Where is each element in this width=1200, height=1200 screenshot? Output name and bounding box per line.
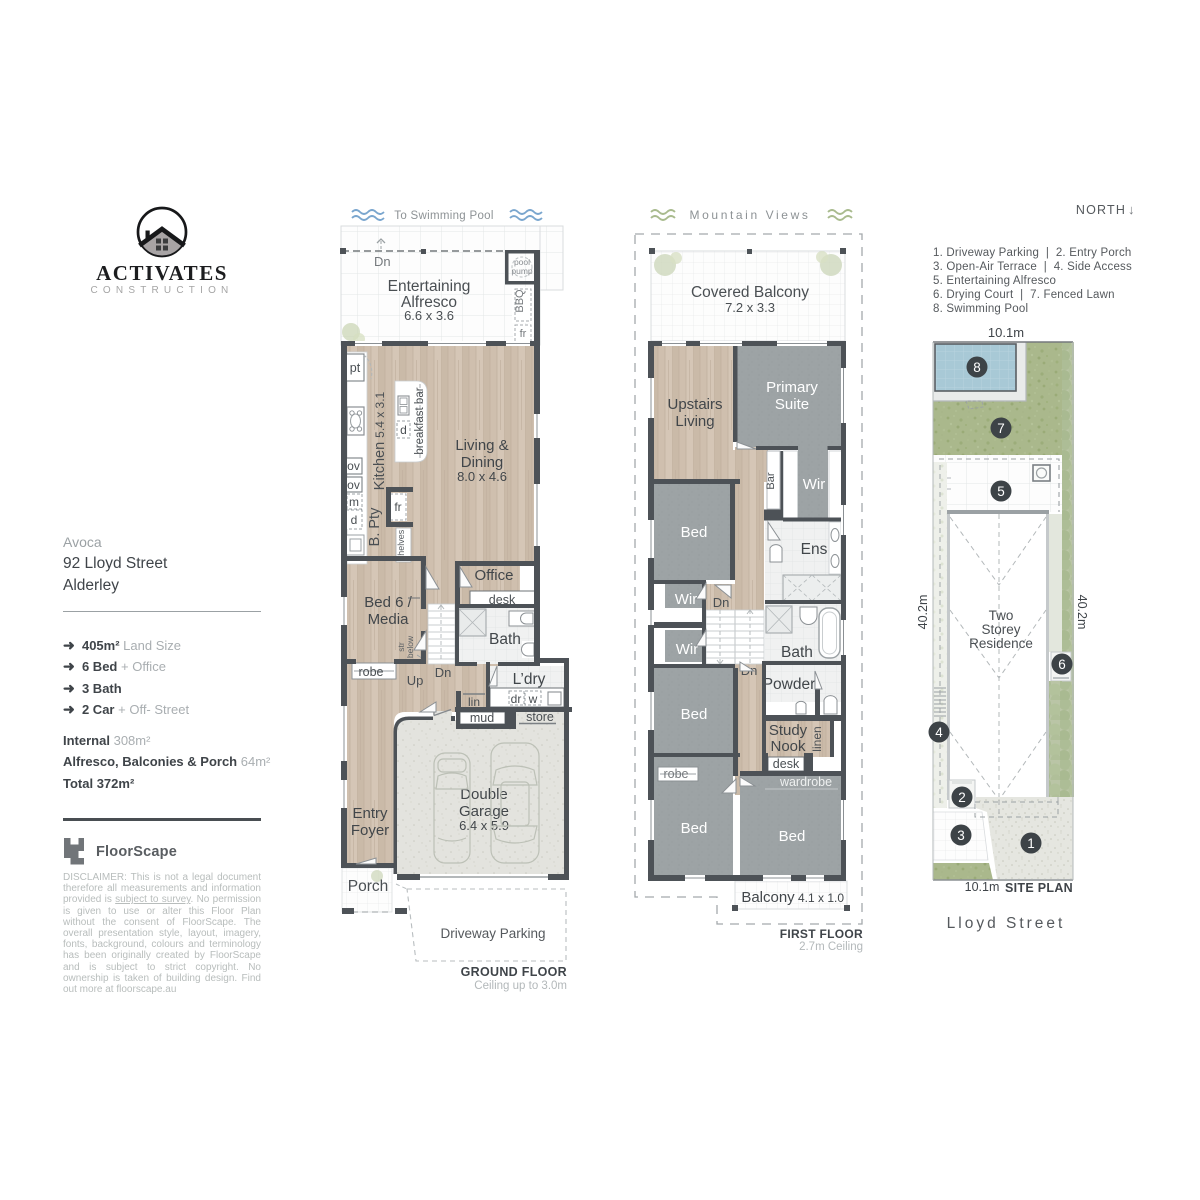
svg-text:Entertaining: Entertaining [388, 278, 471, 295]
svg-text:robe: robe [358, 665, 383, 679]
svg-text:Foyer: Foyer [351, 822, 389, 839]
svg-text:dr: dr [511, 692, 522, 706]
svg-text:L’dry: L’dry [513, 671, 546, 688]
svg-text:7: 7 [997, 421, 1005, 436]
svg-text:8. Swimming Pool: 8. Swimming Pool [933, 303, 1028, 315]
svg-text:8.0 x 4.6: 8.0 x 4.6 [457, 469, 507, 484]
svg-text:3: 3 [957, 828, 965, 843]
svg-text:Dn: Dn [713, 595, 730, 610]
svg-text:1. Driveway Parking | 2. Ent: 1. Driveway Parking | 2. Entry Porch [933, 247, 1132, 259]
svg-text:↓: ↓ [1128, 202, 1135, 217]
svg-text:40.2m: 40.2m [1075, 595, 1089, 630]
svg-text:w: w [528, 692, 538, 706]
svg-text:ov: ov [347, 459, 360, 473]
svg-text:Up: Up [407, 673, 424, 688]
svg-text:wardrobe: wardrobe [779, 775, 832, 789]
svg-text:Balcony: Balcony [741, 889, 795, 906]
svg-text:Kitchen 5.4 x 3.1: Kitchen 5.4 x 3.1 [372, 391, 388, 490]
svg-text:Entry: Entry [352, 805, 388, 822]
svg-text:Residence: Residence [969, 636, 1033, 651]
svg-text:Bar: Bar [765, 472, 777, 489]
svg-text:Wir: Wir [803, 476, 826, 493]
svg-text:6: 6 [1058, 657, 1066, 672]
svg-text:Media: Media [368, 611, 410, 628]
svg-text:Bath: Bath [781, 644, 813, 661]
svg-text:3. Open-Air Terrace | 4. Sid: 3. Open-Air Terrace | 4. Side Access [933, 261, 1132, 273]
svg-text:1: 1 [1027, 836, 1035, 851]
svg-text:Bed: Bed [779, 828, 806, 845]
svg-text:8: 8 [973, 360, 981, 375]
svg-text:linen: linen [810, 726, 824, 751]
svg-text:Ens: Ens [801, 541, 828, 558]
svg-text:Dn: Dn [435, 665, 452, 680]
svg-text:FIRST FLOOR: FIRST FLOOR [780, 927, 863, 941]
svg-text:Wir: Wir [676, 641, 699, 658]
svg-text:5. Entertaining Alfresco: 5. Entertaining Alfresco [933, 275, 1056, 287]
svg-text:5: 5 [997, 484, 1005, 499]
svg-text:BBQ: BBQ [514, 289, 526, 313]
svg-text:robe: robe [663, 767, 688, 781]
svg-text:40.2m: 40.2m [916, 595, 930, 630]
svg-text:6.6 x 3.6: 6.6 x 3.6 [404, 308, 454, 323]
svg-text:SITE PLAN: SITE PLAN [1005, 881, 1073, 895]
svg-text:d: d [400, 423, 407, 437]
svg-text:Study: Study [769, 722, 808, 739]
svg-text:NORTH: NORTH [1076, 203, 1126, 217]
svg-text:Wir: Wir [675, 591, 698, 608]
svg-text:2.7m Ceiling: 2.7m Ceiling [799, 941, 863, 953]
svg-text:Living: Living [675, 413, 714, 430]
svg-text:7.2 x 3.3: 7.2 x 3.3 [725, 300, 775, 315]
svg-text:Primary: Primary [766, 379, 818, 396]
svg-text:Bed: Bed [681, 706, 708, 723]
svg-text:below: below [405, 635, 415, 658]
svg-text:Ceiling up to 3.0m: Ceiling up to 3.0m [474, 980, 567, 992]
svg-text:Bath: Bath [489, 631, 521, 648]
svg-text:Office: Office [475, 567, 514, 584]
svg-text:d: d [351, 513, 358, 527]
svg-text:4: 4 [935, 725, 943, 740]
svg-text:fr: fr [394, 500, 401, 514]
svg-text:store: store [526, 710, 554, 724]
svg-text:mud: mud [470, 711, 494, 725]
svg-text:lin: lin [468, 695, 480, 709]
svg-text:ov: ov [347, 478, 360, 492]
svg-text:Nook: Nook [770, 738, 806, 755]
svg-text:B. Pty: B. Pty [367, 507, 383, 546]
svg-text:Two: Two [989, 608, 1014, 623]
svg-text:m: m [349, 495, 359, 509]
svg-text:Bed: Bed [681, 524, 708, 541]
svg-text:6. Drying Court | 7. Fenced: 6. Drying Court | 7. Fenced Lawn [933, 289, 1115, 301]
svg-text:desk: desk [773, 757, 800, 771]
svg-text:Living &: Living & [455, 437, 508, 454]
svg-text:Storey: Storey [981, 622, 1020, 637]
svg-text:To Swimming Pool: To Swimming Pool [394, 210, 493, 222]
svg-text:Bed 6 /: Bed 6 / [364, 594, 412, 611]
svg-text:breakfast bar: breakfast bar [414, 387, 426, 454]
svg-text:Dn: Dn [374, 254, 391, 269]
svg-text:Suite: Suite [775, 396, 809, 413]
svg-text:Lloyd Street: Lloyd Street [947, 915, 1066, 932]
svg-text:fr: fr [520, 328, 527, 340]
svg-text:4.1 x 1.0: 4.1 x 1.0 [798, 891, 844, 905]
svg-text:shelves: shelves [396, 529, 406, 560]
svg-text:10.1m: 10.1m [965, 880, 1000, 894]
svg-text:GROUND FLOOR: GROUND FLOOR [461, 965, 567, 979]
svg-text:Powder: Powder [763, 676, 816, 693]
svg-text:Mountain Views: Mountain Views [690, 208, 811, 222]
svg-text:Upstairs: Upstairs [667, 396, 722, 413]
svg-text:2: 2 [958, 790, 966, 805]
svg-text:10.1m: 10.1m [988, 325, 1024, 340]
svg-text:Porch: Porch [348, 878, 389, 895]
svg-text:Covered Balcony: Covered Balcony [691, 284, 809, 301]
svg-text:Bed: Bed [681, 820, 708, 837]
svg-text:pt: pt [350, 361, 361, 375]
svg-text:pump: pump [511, 266, 533, 276]
svg-text:Driveway Parking: Driveway Parking [440, 926, 545, 941]
